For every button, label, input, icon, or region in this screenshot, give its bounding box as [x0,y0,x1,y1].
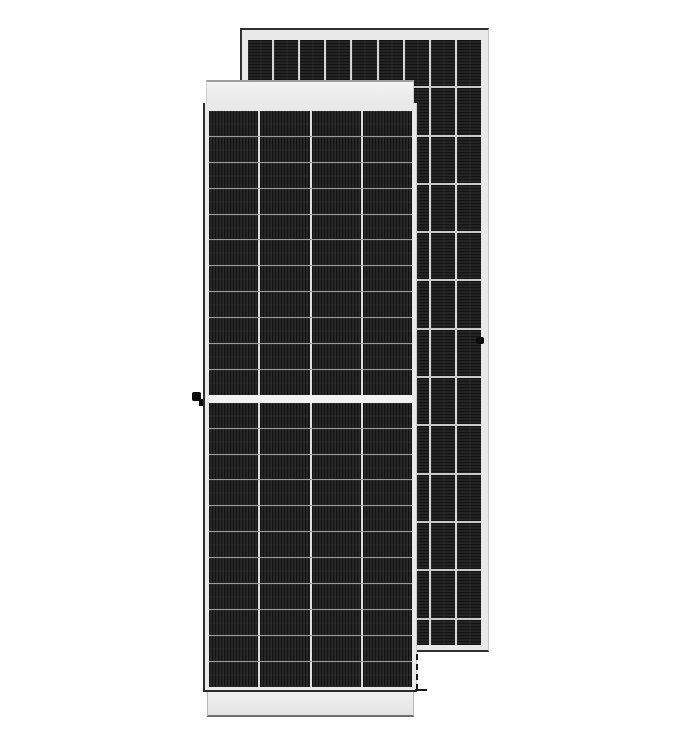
solar-cell [457,620,481,645]
solar-cell [260,532,309,557]
solar-cell [260,344,309,369]
solar-cell [312,636,361,661]
solar-cell [312,610,361,635]
solar-cell [363,429,412,454]
solar-cell [363,370,412,395]
solar-cell [260,370,309,395]
front-panel-grounding-knob-tab [199,399,203,406]
solar-cell [363,403,412,428]
cell-row [209,584,412,609]
cell-row [209,636,412,661]
cell-row [209,429,412,454]
solar-cell [260,318,309,343]
solar-cell [363,584,412,609]
solar-cell [363,215,412,240]
solar-cell [457,40,481,86]
solar-cell [363,137,412,162]
solar-cell [312,111,361,136]
solar-cell [312,292,361,317]
solar-cell [363,636,412,661]
solar-cell [260,240,309,265]
solar-cell [363,318,412,343]
solar-cell [431,137,455,183]
solar-cell [209,455,258,480]
solar-cell [209,532,258,557]
solar-cell [312,266,361,291]
solar-cell [312,558,361,583]
solar-cell [260,429,309,454]
cell-row [209,266,412,291]
solar-cell [457,185,481,231]
solar-cell [209,163,258,188]
cell-row [209,137,412,162]
solar-cell [209,215,258,240]
solar-cell [209,111,258,136]
cell-row [209,215,412,240]
solar-cell [363,266,412,291]
rear-panel-grounding-knob [476,337,484,344]
solar-cell [431,571,455,617]
solar-cell [363,558,412,583]
solar-cell [431,233,455,279]
solar-cell [209,189,258,214]
solar-cell [431,330,455,376]
solar-cell [312,318,361,343]
solar-cell [363,506,412,531]
solar-cell [363,610,412,635]
solar-cell [363,455,412,480]
solar-cell [431,281,455,327]
solar-cell [312,163,361,188]
cell-row [209,344,412,369]
front-panel-right-edge-dashes [415,654,418,690]
solar-cell [312,403,361,428]
solar-cell [431,40,455,86]
solar-cell [209,636,258,661]
solar-cell [209,292,258,317]
solar-cell [431,378,455,424]
solar-cell [209,266,258,291]
solar-cell [457,475,481,521]
solar-cell [312,584,361,609]
solar-cell [260,111,309,136]
solar-cell [209,506,258,531]
solar-cell [312,344,361,369]
solar-cell [260,163,309,188]
solar-cell [209,480,258,505]
solar-cell [363,163,412,188]
solar-cell [209,558,258,583]
solar-cell [363,662,412,687]
solar-cell [431,523,455,569]
solar-cell [457,378,481,424]
front-panel-corner-dashes [415,688,427,691]
solar-cell [312,455,361,480]
solar-cell [260,403,309,428]
solar-cell [260,636,309,661]
solar-cell [363,532,412,557]
solar-cell [363,189,412,214]
solar-cell [431,426,455,472]
solar-cell [260,610,309,635]
solar-cell [312,137,361,162]
cell-row [209,111,412,136]
solar-cell [457,571,481,617]
solar-cell [312,370,361,395]
solar-cell [363,344,412,369]
solar-cell [312,480,361,505]
cell-row [209,506,412,531]
solar-cell [312,189,361,214]
solar-cell [457,233,481,279]
solar-cell [260,558,309,583]
product-image-canvas [0,0,684,748]
solar-cell [363,292,412,317]
cell-row [209,189,412,214]
cell-row [209,370,412,395]
cell-row [209,610,412,635]
solar-cell [457,523,481,569]
solar-cell [260,189,309,214]
solar-cell [209,662,258,687]
front-panel-bottom-frame-band [207,692,414,717]
solar-cell [457,426,481,472]
solar-cell [209,240,258,265]
solar-cell [209,137,258,162]
cell-row [209,455,412,480]
solar-cell [260,584,309,609]
cell-row [209,480,412,505]
solar-cell [312,429,361,454]
solar-cell [312,240,361,265]
cell-row [209,532,412,557]
solar-cell [209,344,258,369]
solar-cell [457,281,481,327]
solar-cell [312,532,361,557]
solar-cell [260,137,309,162]
cell-row [209,403,412,428]
solar-cell [209,370,258,395]
front-panel-cell-grid [209,111,412,687]
solar-cell [363,240,412,265]
solar-cell [209,403,258,428]
solar-cell [260,662,309,687]
cell-row [209,662,412,687]
solar-cell [431,88,455,134]
cell-row [209,240,412,265]
solar-cell [312,506,361,531]
solar-cell [260,215,309,240]
solar-cell [431,620,455,645]
solar-cell [312,215,361,240]
cell-row [209,292,412,317]
solar-cell [209,610,258,635]
cell-row [209,163,412,188]
solar-cell [209,429,258,454]
cell-row [209,558,412,583]
front-panel-middle-divider [209,395,412,403]
solar-cell [312,662,361,687]
solar-cell [363,111,412,136]
cell-row [209,318,412,343]
solar-cell [209,584,258,609]
solar-cell [431,185,455,231]
solar-cell [209,318,258,343]
solar-cell [363,480,412,505]
solar-cell [260,480,309,505]
solar-cell [260,455,309,480]
solar-cell [260,292,309,317]
solar-cell [457,88,481,134]
solar-cell [260,266,309,291]
solar-cell [457,137,481,183]
solar-cell [260,506,309,531]
solar-cell [431,475,455,521]
